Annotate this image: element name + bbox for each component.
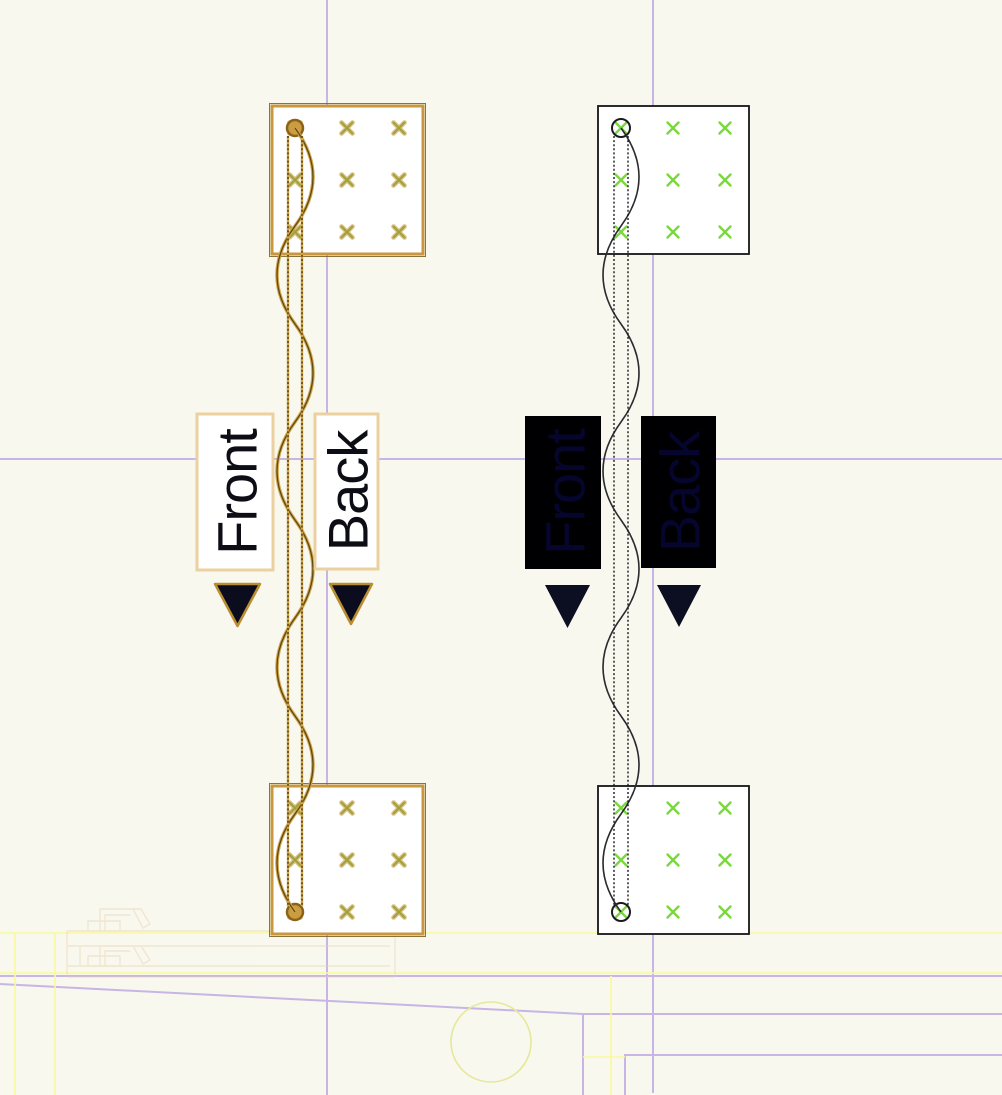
front-label-text: Front	[205, 428, 268, 555]
net-group-normal[interactable]: Front Back	[525, 106, 749, 934]
front-arrow[interactable]	[545, 585, 590, 628]
board-edge-line	[625, 1055, 1002, 1095]
board-edge-line	[0, 984, 1002, 1095]
front-label-text: Front	[533, 428, 596, 555]
back-label-text: Back	[316, 429, 379, 551]
pcb-canvas[interactable]: Front Back Front	[0, 0, 1002, 1095]
net-group-highlighted[interactable]: Front Back	[197, 104, 426, 937]
mounting-hole-circle	[451, 1002, 531, 1082]
front-arrow-highlighted[interactable]	[215, 584, 260, 626]
back-arrow[interactable]	[657, 585, 701, 627]
back-label-text: Back	[648, 430, 711, 552]
back-arrow-highlighted[interactable]	[330, 584, 372, 624]
